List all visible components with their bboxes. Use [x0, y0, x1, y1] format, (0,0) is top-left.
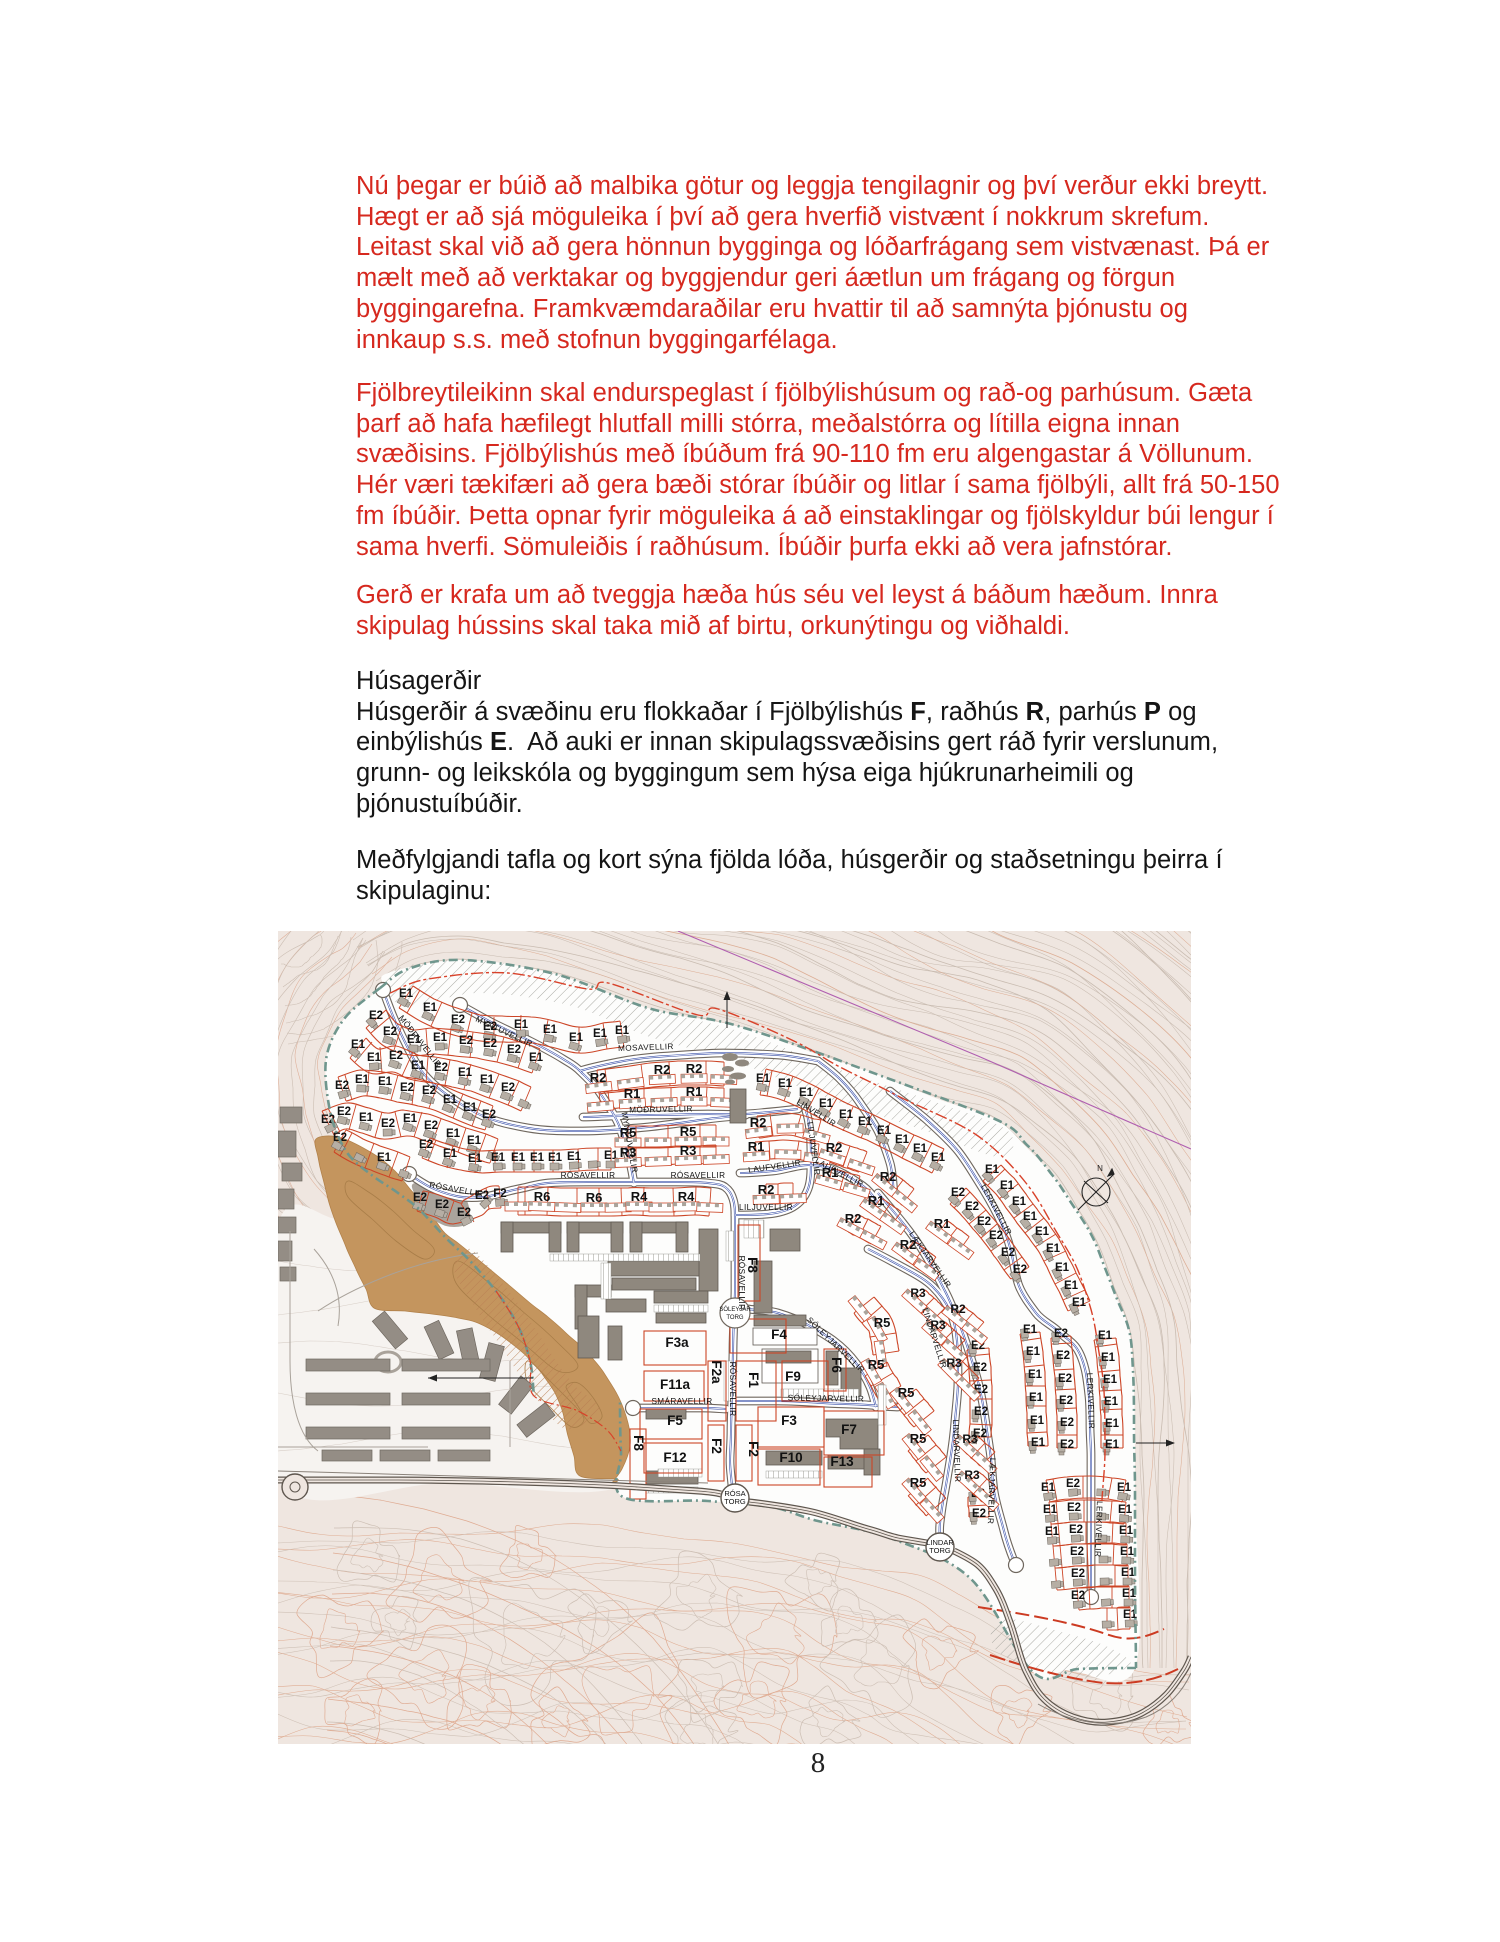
svg-text:E1: E1: [1046, 1243, 1061, 1255]
svg-text:E1: E1: [1043, 1504, 1058, 1516]
svg-text:R2: R2: [750, 1115, 767, 1130]
svg-text:E1: E1: [399, 988, 414, 1000]
svg-text:R1: R1: [686, 1084, 703, 1099]
svg-text:E1: E1: [1119, 1525, 1134, 1537]
svg-text:R1: R1: [624, 1086, 641, 1101]
svg-text:E2: E2: [989, 1230, 1003, 1242]
svg-text:R5: R5: [910, 1475, 927, 1490]
svg-text:E1: E1: [480, 1074, 495, 1086]
svg-text:R4: R4: [631, 1189, 648, 1204]
svg-text:E2: E2: [383, 1026, 397, 1038]
svg-text:E2: E2: [435, 1199, 449, 1211]
svg-text:R6: R6: [534, 1189, 551, 1204]
svg-text:F2a: F2a: [709, 1360, 724, 1384]
svg-text:E2: E2: [422, 1085, 436, 1097]
svg-text:E2: E2: [974, 1406, 988, 1418]
svg-text:E2: E2: [413, 1192, 427, 1204]
svg-text:E2: E2: [1066, 1478, 1080, 1490]
svg-text:E1: E1: [511, 1152, 526, 1164]
svg-text:E1: E1: [446, 1128, 461, 1140]
svg-text:E1: E1: [359, 1112, 374, 1124]
svg-text:E2: E2: [400, 1082, 414, 1094]
svg-text:E2: E2: [1069, 1524, 1083, 1536]
svg-text:E2: E2: [965, 1201, 979, 1213]
svg-text:E1: E1: [1101, 1352, 1116, 1364]
svg-text:R2: R2: [758, 1182, 775, 1197]
svg-text:F7: F7: [841, 1422, 857, 1437]
svg-text:E1: E1: [1035, 1226, 1050, 1238]
svg-text:SÓLEYJAR: SÓLEYJAR: [719, 1306, 751, 1313]
svg-text:R5: R5: [868, 1357, 885, 1372]
svg-text:F9: F9: [785, 1369, 801, 1384]
svg-text:F4: F4: [771, 1327, 787, 1342]
svg-text:E1: E1: [1103, 1374, 1118, 1386]
svg-text:E2: E2: [1054, 1328, 1068, 1340]
svg-text:E1: E1: [615, 1025, 630, 1037]
svg-text:R1: R1: [748, 1139, 765, 1154]
svg-text:E1: E1: [411, 1060, 426, 1072]
svg-text:LILJUVELLIR: LILJUVELLIR: [739, 1203, 793, 1212]
svg-text:E1: E1: [1029, 1392, 1044, 1404]
svg-text:R2: R2: [654, 1062, 671, 1077]
svg-text:R3: R3: [962, 1432, 978, 1446]
svg-text:MÖÐRUVELLIR: MÖÐRUVELLIR: [629, 1103, 693, 1114]
svg-text:E1: E1: [1023, 1211, 1038, 1223]
svg-text:E1: E1: [1026, 1346, 1041, 1358]
svg-text:E1: E1: [530, 1152, 545, 1164]
svg-text:E2: E2: [1070, 1546, 1084, 1558]
svg-text:R3: R3: [946, 1356, 962, 1370]
svg-text:E2: E2: [977, 1216, 991, 1228]
svg-text:E2: E2: [369, 1010, 383, 1022]
svg-text:F8: F8: [745, 1257, 760, 1273]
svg-text:F3a: F3a: [665, 1335, 689, 1350]
svg-text:R5: R5: [680, 1124, 697, 1139]
svg-text:TORG: TORG: [724, 1497, 746, 1506]
svg-text:E1: E1: [467, 1135, 482, 1147]
svg-text:E1: E1: [1117, 1482, 1132, 1494]
svg-text:E1: E1: [593, 1028, 608, 1040]
svg-text:E1: E1: [819, 1098, 834, 1110]
svg-text:R2: R2: [950, 1302, 966, 1316]
svg-text:R2: R2: [826, 1140, 843, 1155]
svg-text:E1: E1: [877, 1125, 892, 1137]
svg-text:E1: E1: [1041, 1482, 1056, 1494]
svg-text:TORG: TORG: [929, 1546, 951, 1555]
svg-text:F8: F8: [631, 1435, 646, 1451]
svg-text:R3: R3: [964, 1468, 980, 1482]
svg-text:R4: R4: [678, 1189, 695, 1204]
svg-text:E2: E2: [973, 1362, 987, 1374]
svg-text:E1: E1: [1121, 1567, 1136, 1579]
svg-text:E2: E2: [381, 1118, 395, 1130]
svg-text:E1: E1: [1000, 1180, 1015, 1192]
svg-text:E1: E1: [569, 1032, 584, 1044]
svg-text:E1: E1: [367, 1052, 382, 1064]
svg-text:E1: E1: [1045, 1526, 1060, 1538]
svg-text:E1: E1: [1023, 1324, 1038, 1336]
svg-text:E1: E1: [1105, 1418, 1120, 1430]
svg-text:E1: E1: [839, 1109, 854, 1121]
svg-text:E1: E1: [443, 1094, 458, 1106]
svg-text:R2: R2: [845, 1211, 862, 1226]
svg-text:F6: F6: [829, 1357, 844, 1373]
svg-text:E1: E1: [1105, 1439, 1120, 1451]
svg-text:R5: R5: [910, 1431, 927, 1446]
svg-text:SÓLEYJARVELLIR: SÓLEYJARVELLIR: [788, 1392, 865, 1403]
svg-text:E1: E1: [468, 1153, 483, 1165]
svg-text:E1: E1: [567, 1151, 582, 1163]
svg-text:R1: R1: [934, 1216, 951, 1231]
svg-text:E1: E1: [1118, 1504, 1133, 1516]
svg-text:E1: E1: [377, 1152, 392, 1164]
svg-text:E1: E1: [1055, 1262, 1070, 1274]
svg-text:F13: F13: [830, 1454, 854, 1469]
svg-text:E2: E2: [482, 1109, 496, 1121]
svg-text:R1: R1: [868, 1193, 885, 1208]
svg-text:E1: E1: [403, 1113, 418, 1125]
svg-text:E2: E2: [1059, 1395, 1073, 1407]
svg-text:E1: E1: [1030, 1415, 1045, 1427]
svg-text:E1: E1: [529, 1052, 544, 1064]
svg-text:E1: E1: [423, 1002, 438, 1014]
svg-text:E1: E1: [543, 1024, 558, 1036]
svg-text:E2: E2: [483, 1038, 497, 1050]
svg-text:R3: R3: [910, 1286, 926, 1300]
svg-text:E2: E2: [337, 1106, 351, 1118]
svg-text:E1: E1: [895, 1134, 910, 1146]
svg-text:E1: E1: [1028, 1369, 1043, 1381]
svg-text:E2: E2: [451, 1014, 465, 1026]
svg-text:E2: E2: [457, 1207, 471, 1219]
svg-text:RÓSAVELLIR: RÓSAVELLIR: [561, 1170, 616, 1180]
svg-text:E1: E1: [985, 1164, 1000, 1176]
svg-text:F1: F1: [746, 1372, 761, 1388]
svg-text:E2: E2: [1067, 1502, 1081, 1514]
svg-text:E1: E1: [931, 1152, 946, 1164]
svg-text:E1: E1: [355, 1074, 370, 1086]
svg-text:E2: E2: [501, 1082, 515, 1094]
svg-text:R2: R2: [686, 1061, 703, 1076]
svg-text:RÓSAVELLIR: RÓSAVELLIR: [737, 1256, 747, 1311]
svg-text:E1: E1: [913, 1143, 928, 1155]
svg-text:E1: E1: [858, 1116, 873, 1128]
svg-text:E1: E1: [548, 1152, 563, 1164]
svg-text:F2: F2: [746, 1441, 761, 1457]
svg-text:R2: R2: [880, 1169, 897, 1184]
svg-text:E2: E2: [1058, 1373, 1072, 1385]
svg-text:E1: E1: [463, 1102, 478, 1114]
svg-text:E2: E2: [1060, 1439, 1074, 1451]
svg-text:F3: F3: [781, 1413, 797, 1428]
svg-text:E1: E1: [1064, 1280, 1079, 1292]
svg-text:E1: E1: [756, 1073, 771, 1085]
svg-text:E1: E1: [1104, 1396, 1119, 1408]
svg-text:R2: R2: [590, 1070, 607, 1085]
svg-text:E1: E1: [351, 1039, 366, 1051]
svg-text:E1: E1: [458, 1067, 473, 1079]
svg-text:E2: E2: [459, 1035, 473, 1047]
svg-text:F11a: F11a: [660, 1377, 691, 1392]
svg-text:F12: F12: [663, 1450, 686, 1465]
svg-text:RÓSAVELLIR: RÓSAVELLIR: [728, 1362, 738, 1417]
svg-text:E2: E2: [389, 1050, 403, 1062]
svg-text:R5: R5: [898, 1385, 915, 1400]
svg-text:E1: E1: [1098, 1330, 1113, 1342]
svg-text:E2: E2: [335, 1080, 349, 1092]
svg-text:E2: E2: [1001, 1247, 1015, 1259]
svg-text:RÓSAVELLIR: RÓSAVELLIR: [671, 1170, 726, 1180]
svg-text:F2: F2: [709, 1438, 724, 1454]
svg-text:E2: E2: [951, 1187, 965, 1199]
svg-text:E2: E2: [419, 1139, 433, 1151]
svg-text:E2: E2: [1013, 1264, 1027, 1276]
svg-text:E2: E2: [507, 1044, 521, 1056]
svg-text:R5: R5: [874, 1315, 891, 1330]
svg-text:E1: E1: [1031, 1437, 1046, 1449]
svg-text:E2: E2: [424, 1120, 438, 1132]
svg-text:F2: F2: [493, 1188, 506, 1200]
svg-text:E1: E1: [378, 1076, 393, 1088]
svg-text:E2: E2: [972, 1508, 986, 1520]
svg-text:E1: E1: [778, 1078, 793, 1090]
svg-text:R6: R6: [586, 1190, 603, 1205]
svg-text:E2: E2: [1071, 1590, 1085, 1602]
svg-text:TORG: TORG: [726, 1315, 744, 1321]
svg-text:F10: F10: [779, 1450, 802, 1465]
svg-text:SMÁRAVELLIR: SMÁRAVELLIR: [651, 1396, 712, 1406]
svg-text:E1: E1: [491, 1152, 506, 1164]
svg-text:E2: E2: [1056, 1350, 1070, 1362]
svg-text:E1: E1: [1120, 1546, 1135, 1558]
svg-text:E1: E1: [443, 1148, 458, 1160]
svg-text:N: N: [1097, 1164, 1103, 1173]
svg-text:E1: E1: [433, 1032, 448, 1044]
svg-text:R3: R3: [680, 1143, 697, 1158]
svg-text:E1: E1: [514, 1019, 529, 1031]
svg-text:F5: F5: [667, 1413, 683, 1428]
svg-text:E1: E1: [1012, 1196, 1027, 1208]
svg-text:E1: E1: [1072, 1297, 1087, 1309]
svg-text:E2: E2: [1071, 1568, 1085, 1580]
svg-text:E2: E2: [1060, 1417, 1074, 1429]
